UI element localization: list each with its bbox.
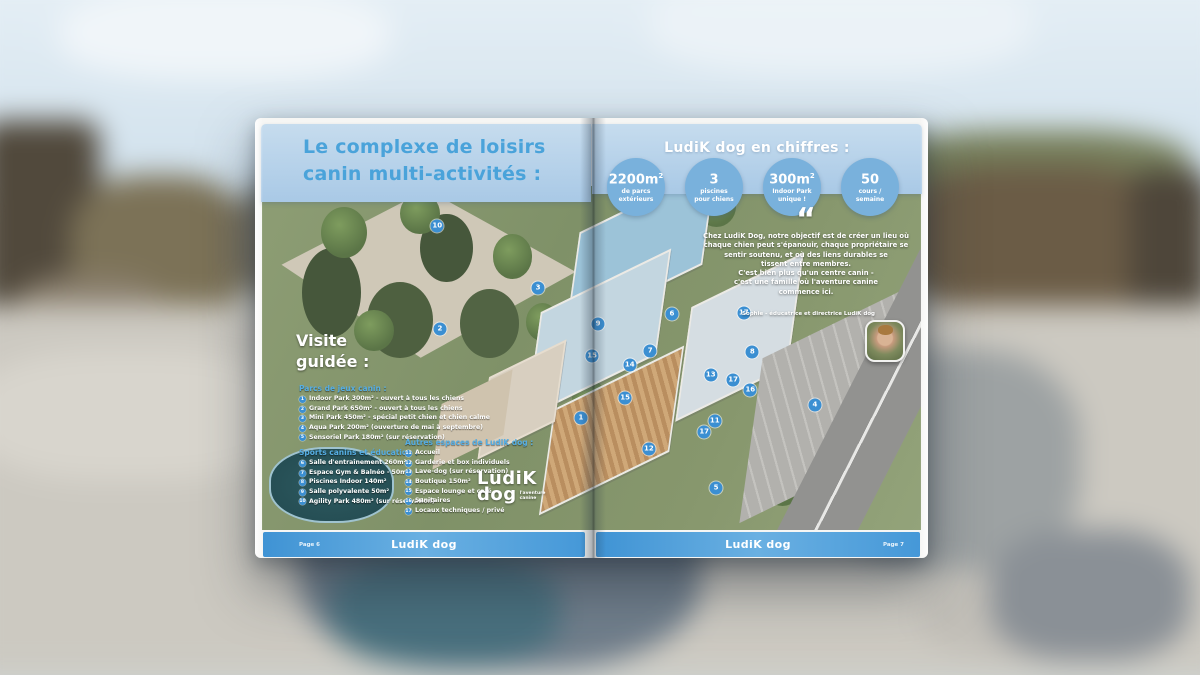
item-number-badge: 7 [299,470,306,477]
parcs-list: Parcs de jeux canin : 1 Indoor Park 300m… [299,384,490,444]
item-label: Boutique 150m² [415,479,471,486]
item-number-badge: 13 [405,469,412,476]
map-marker: 17 [698,425,711,438]
item-number-badge: 12 [405,460,412,467]
stat-label: cours / semaine [841,188,899,204]
right-footer-bar: LudiK dog Page 7 [596,532,920,557]
list-item: 3 Mini Park 450m² - spécial petit chien … [299,415,490,422]
item-number-badge: 1 [299,396,306,403]
item-label: Sanitaires [415,498,450,505]
map-marker: 16 [744,383,757,396]
item-number-badge: 10 [299,498,306,505]
stat-circle: 50 cours / semaine [841,158,899,216]
stat-value: 2200m2 [607,170,665,186]
parcs-list-title: Parcs de jeux canin : [299,384,490,393]
item-label: Locaux techniques / privé [415,508,504,515]
list-item: 2 Grand Park 650m² - ouvert à tous les c… [299,406,490,413]
footer-brand-right: LudiK dog [596,538,920,551]
avatar [865,320,905,362]
parcs-items: 1 Indoor Park 300m² - ouvert à tous les … [299,396,490,441]
quote-block: “ Chez LudiK Dog, notre objectif est de … [695,210,917,297]
item-label: Piscines Indoor 140m² [309,479,386,486]
stats-heading: LudiK dog en chiffres : [592,140,922,156]
item-label: Garderie et box individuels [415,460,510,467]
item-label: Salle d'entraînement 260m² [309,460,406,467]
quote-line: Chez LudiK Dog, notre objectif est de cr… [695,232,917,241]
stat-value: 50 [841,170,899,186]
map-marker: 12 [642,443,655,456]
stat-value: 3 [685,170,743,186]
item-label: Aqua Park 200m² (ouverture de mai à sept… [309,425,483,432]
logo-line2: dog [477,487,517,503]
map-marker: 14 [623,358,636,371]
quote-attribution: Sophie - éducatrice et directrice LudiK … [700,311,917,317]
ludik-dog-logo: LudiK dog l'aventure canine [477,470,545,503]
map-marker: 7 [644,345,657,358]
blurred-foreground-object [330,555,560,665]
stats-row: 2200m2 de parcs extérieurs 3 piscines po… [607,158,899,216]
item-label: Accueil [415,450,440,457]
quote-mark: “ [695,210,917,232]
list-item: 4 Aqua Park 200m² (ouverture de mai à se… [299,425,490,432]
list-item: 12 Garderie et box individuels [405,460,533,467]
quote-text: Chez LudiK Dog, notre objectif est de cr… [695,232,917,297]
stat-circle: 3 piscines pour chiens [685,158,743,216]
item-number-badge: 8 [299,479,306,486]
page-title-line1: Le complexe de loisirs [303,134,546,161]
item-number-badge: 5 [299,434,306,441]
map-marker: 9 [592,317,605,330]
item-label: Mini Park 450m² - spécial petit chien et… [309,415,490,422]
map-marker: 5 [710,482,723,495]
page-number-right: Page 7 [883,542,904,548]
scene: 1234567891011121314151516171717 Le compl… [0,0,1200,675]
stat-label: de parcs extérieurs [607,188,665,204]
item-number-badge: 15 [405,488,412,495]
map-marker: 10 [431,219,444,232]
stat-label: piscines pour chiens [685,188,743,204]
quote-line: chaque chien peut s'épanouir, chaque pro… [695,241,917,250]
cloud [650,0,1030,75]
cloud [60,0,390,80]
item-label: Grand Park 650m² - ouvert à tous les chi… [309,406,463,413]
blurred-foreground-object [990,530,1190,660]
item-label: Salle polyvalente 50m² [309,489,389,496]
footer-brand-left: LudiK dog [263,538,585,551]
list-item: 11 Accueil [405,450,533,457]
quote-line: sentir soutenu, et où des liens durables… [695,251,917,260]
item-number-badge: 14 [405,479,412,486]
map-marker: 1 [574,411,587,424]
map-marker: 6 [665,307,678,320]
map-marker: 8 [746,346,759,359]
item-number-badge: 6 [299,460,306,467]
quote-line: tissent entre membres. [695,260,917,269]
map-marker: 17 [727,374,740,387]
item-number-badge: 17 [405,508,412,515]
stat-circle: 2200m2 de parcs extérieurs [607,158,665,216]
list-item: 1 Indoor Park 300m² - ouvert à tous les … [299,396,490,403]
map-marker: 15 [619,391,632,404]
list-item: 17 Locaux techniques / privé [405,508,533,515]
map-marker: 4 [808,399,821,412]
page-title: Le complexe de loisirs canin multi-activ… [303,134,546,188]
item-number-badge: 3 [299,415,306,422]
item-number-badge: 11 [405,450,412,457]
map-marker: 15 [586,349,599,362]
item-number-badge: 9 [299,489,306,496]
item-label: Espace Gym & Balnéo - 50m² [309,470,409,477]
brochure-spread: 1234567891011121314151516171717 Le compl… [255,118,928,558]
visite-heading: Visite guidée : [296,330,369,372]
map-marker: 3 [532,282,545,295]
page-title-line2: canin multi-activités : [303,161,546,188]
map-marker: 11 [708,414,721,427]
item-number-badge: 16 [405,498,412,505]
left-footer-bar: Page 6 LudiK dog [263,532,585,557]
autres-list-title: Autres espaces de LudiK dog : [405,438,533,447]
map-marker: 2 [433,323,446,336]
item-number-badge: 2 [299,406,306,413]
item-number-badge: 4 [299,425,306,432]
quote-line: commence ici. [695,288,917,297]
quote-line: c'est une famille où l'aventure canine [695,278,917,287]
ground-patch [0,350,290,480]
logo-tagline: l'aventure canine [520,491,546,503]
visite-heading-line1: Visite [296,330,369,351]
visite-heading-line2: guidée : [296,351,369,372]
stat-value: 300m2 [763,170,821,186]
map-marker: 13 [704,368,717,381]
item-label: Indoor Park 300m² - ouvert à tous les ch… [309,396,464,403]
